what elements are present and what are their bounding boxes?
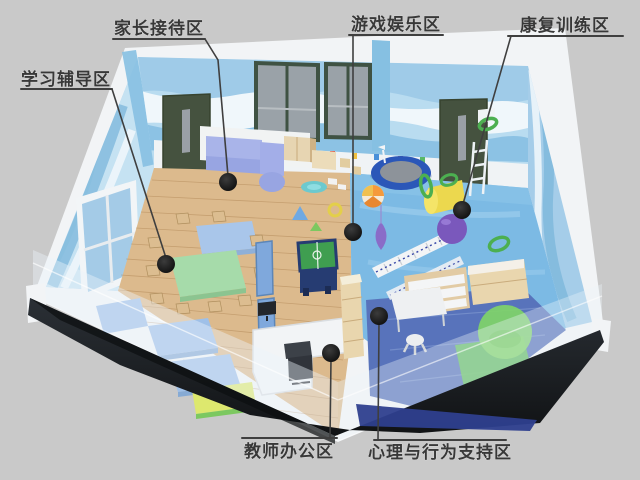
play-mat-tile [338, 184, 346, 190]
zone-label-study: 学习辅导区 [21, 69, 111, 89]
wall-pilaster-center [372, 40, 390, 152]
wood-cabinet-tall [468, 259, 529, 305]
beach-ball [362, 185, 384, 208]
zone-dot-rehab [453, 201, 471, 219]
wood-shelf-column [340, 274, 364, 359]
isometric-room-rendering: 学习辅导区 家长接待区 游戏娱乐区 康复训练区 教师办公区 [0, 0, 640, 480]
zone-dot-study [157, 255, 175, 273]
zone-label-psych: 心理与行为支持区 [368, 442, 512, 462]
divider-panels [256, 241, 275, 340]
play-mat-tile [328, 178, 337, 185]
foosball-table [298, 240, 337, 296]
zone-dot-play [344, 223, 362, 241]
floor-plan-stage: 学习辅导区 家长接待区 游戏娱乐区 康复训练区 教师办公区 [0, 0, 640, 480]
zone-label-rehab: 康复训练区 [520, 15, 610, 35]
zone-dot-reception [219, 173, 237, 191]
toy-box [312, 150, 336, 170]
back-window-2 [326, 64, 370, 138]
zone-dot-psych [370, 307, 388, 325]
zone-dot-office [322, 344, 340, 362]
zone-label-play: 游戏娱乐区 [351, 14, 441, 34]
zone-label-office: 教师办公区 [243, 441, 334, 461]
wood-block [340, 158, 350, 168]
zone-label-reception: 家长接待区 [114, 18, 204, 38]
storage-cabinet [284, 136, 316, 163]
back-window-1 [256, 63, 318, 140]
